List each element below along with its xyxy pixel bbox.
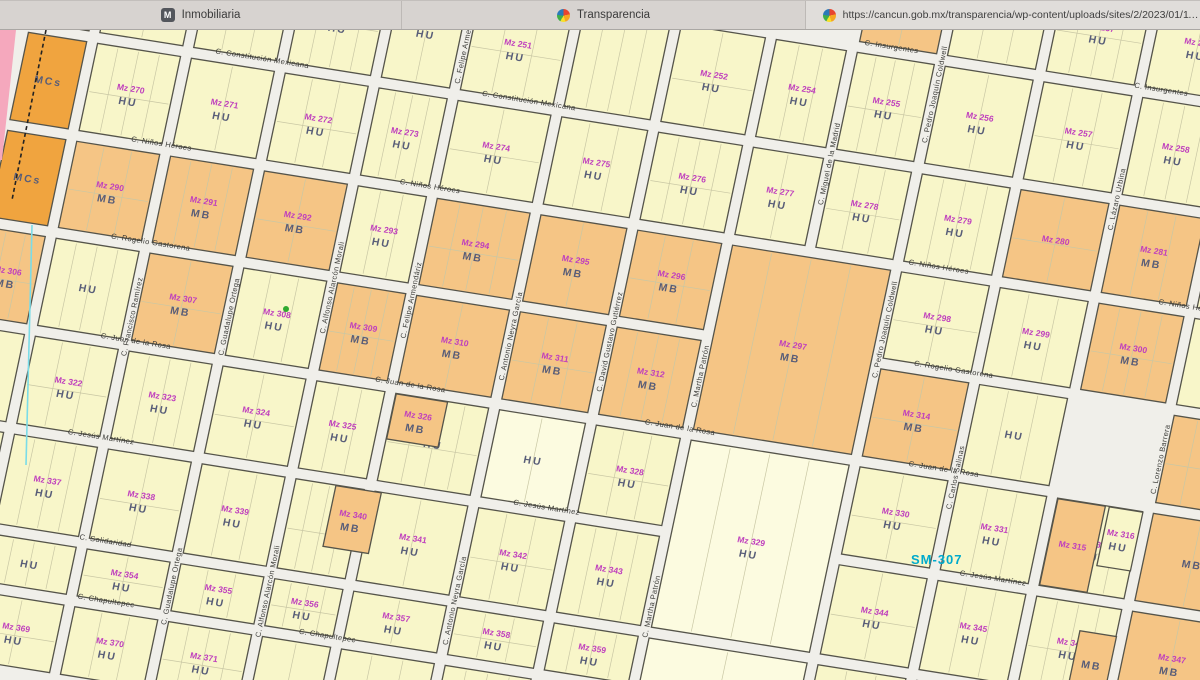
map-block-mz-322 [17, 336, 118, 436]
map-block-mz-311 [502, 312, 606, 413]
zone-label: MB [0, 277, 16, 292]
map-block-mz-272 [267, 73, 368, 173]
zoning-map-svg: Mz 236HUMz 237HUMz 238HUHUMz 249HUHUMz 2… [0, 0, 1200, 680]
map-block-mz-342 [460, 508, 565, 611]
inmobiliaria-favicon-icon: M [161, 8, 175, 22]
zoning-map-document[interactable]: Mz 236HUMz 237HUMz 238HUHUMz 249HUHUMz 2… [0, 0, 1200, 680]
map-block-mz-326 [387, 394, 448, 447]
tab-transparencia[interactable]: Transparencia [401, 1, 805, 29]
browser-tab-bar: M Inmobiliaria Transparencia https://can… [0, 0, 1200, 30]
map-block-mz-299 [982, 288, 1088, 388]
cancun-favicon-icon [823, 9, 836, 22]
map-block-mz-296 [619, 230, 721, 329]
cancun-logo-icon [557, 9, 570, 22]
supermanzana-label: SM-307 [911, 552, 963, 567]
map-block-mz-328 [578, 425, 680, 525]
tab-transparencia-label: Transparencia [577, 9, 650, 21]
map-block-mz-339 [183, 464, 285, 566]
tab-inmobiliaria-label: Inmobiliaria [182, 9, 241, 21]
tab-inmobiliaria[interactable]: M Inmobiliaria [0, 1, 401, 29]
map-green-dot [283, 306, 289, 312]
address-bar[interactable]: https://cancun.gob.mx/transparencia/wp-c… [805, 1, 1200, 29]
map-block-mz-290 [58, 141, 159, 240]
map-block-mz-275 [543, 117, 647, 218]
page-url: https://cancun.gob.mx/transparencia/wp-c… [843, 9, 1200, 21]
